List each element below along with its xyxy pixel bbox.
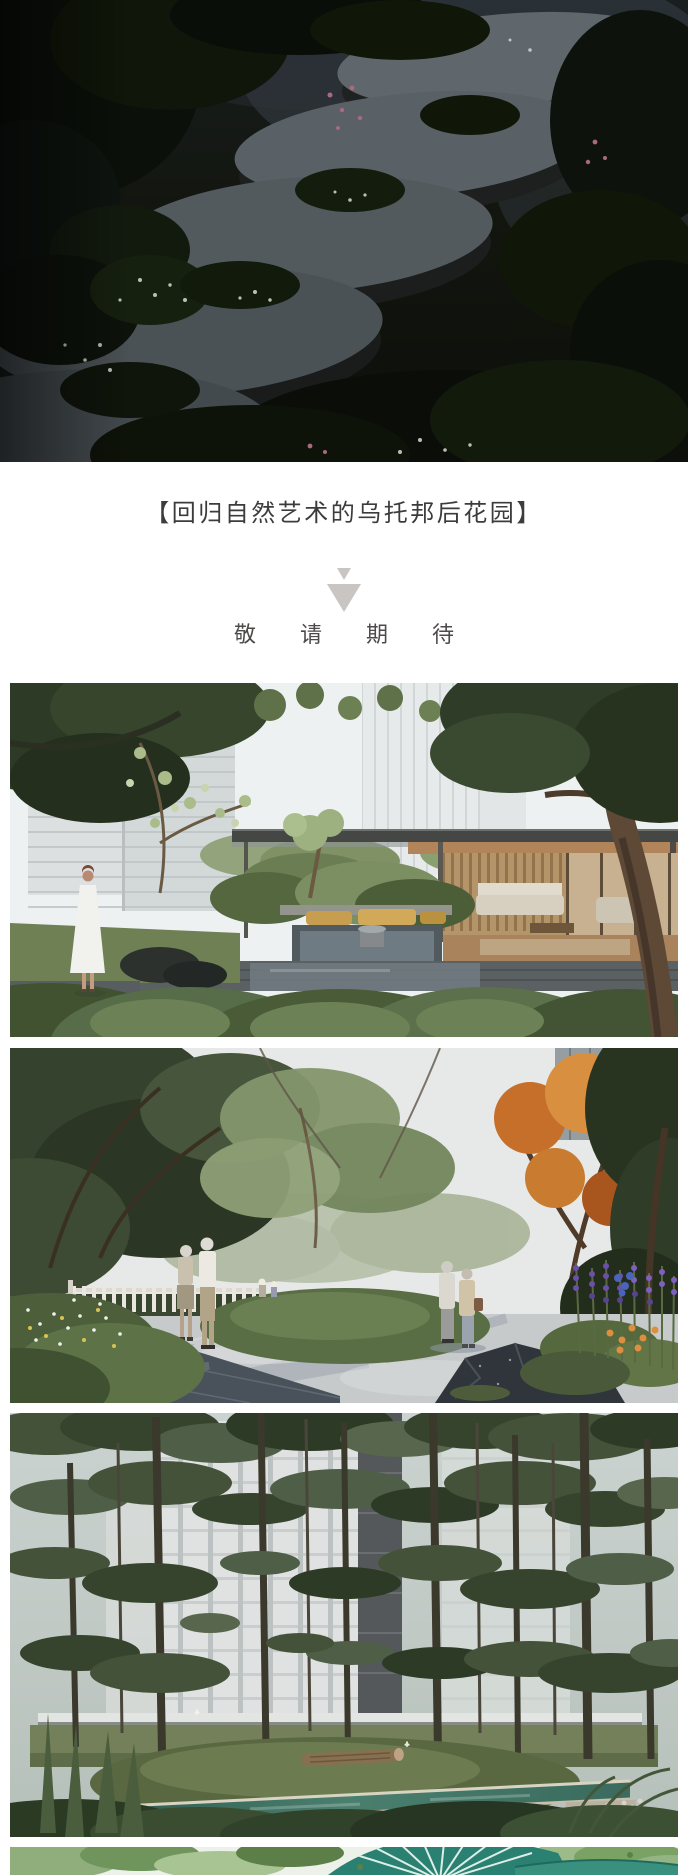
canopy-illustration <box>10 1847 678 1875</box>
balustrade <box>38 1713 642 1725</box>
photo-hero-stepping-stones[interactable] <box>0 0 688 462</box>
section-title: 【回归自然艺术的乌托邦后花园】 <box>0 494 688 534</box>
article-page: 【回归自然艺术的乌托邦后花园】 敬请期待 <box>0 0 688 1875</box>
photo-canopy-partial[interactable] <box>10 1847 678 1875</box>
sunken-lounge <box>280 905 452 965</box>
garden-path-illustration <box>10 1048 678 1403</box>
photo-forest-channel[interactable] <box>10 1413 678 1837</box>
photo-garden-path[interactable] <box>10 1048 678 1403</box>
courtyard-illustration <box>10 683 678 1037</box>
forest-illustration <box>10 1413 678 1837</box>
teaser-text: 敬请期待 <box>0 618 688 652</box>
hero-illustration <box>0 0 688 462</box>
photo-courtyard-pavilion[interactable] <box>10 683 678 1037</box>
double-chevron-down-icon <box>324 566 364 614</box>
